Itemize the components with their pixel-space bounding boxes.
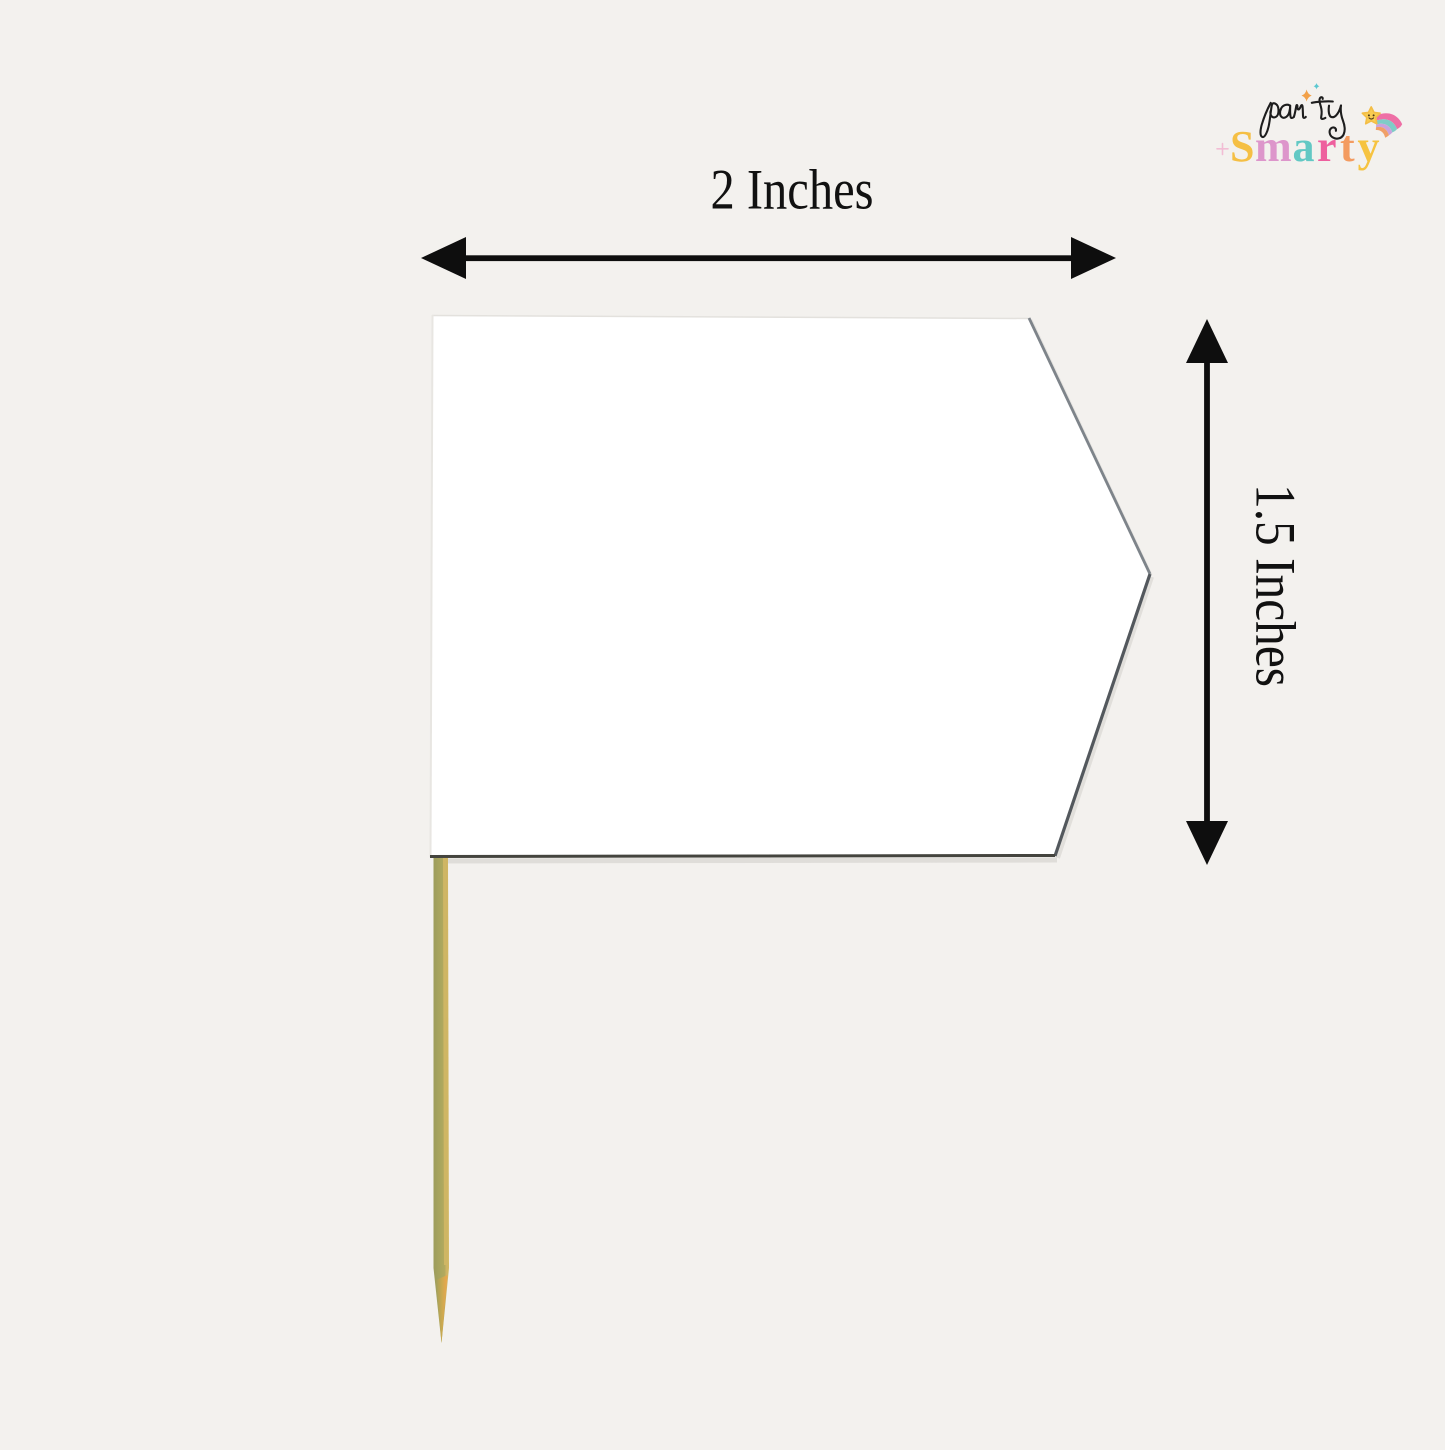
svg-text:1.5 Inches: 1.5 Inches	[1244, 484, 1307, 687]
svg-text:m: m	[1255, 122, 1292, 171]
svg-text:2 Inches: 2 Inches	[711, 159, 874, 222]
svg-text:a: a	[1293, 122, 1315, 171]
svg-text:r: r	[1317, 122, 1337, 171]
svg-text:t: t	[1340, 122, 1355, 171]
svg-text:S: S	[1230, 122, 1254, 171]
